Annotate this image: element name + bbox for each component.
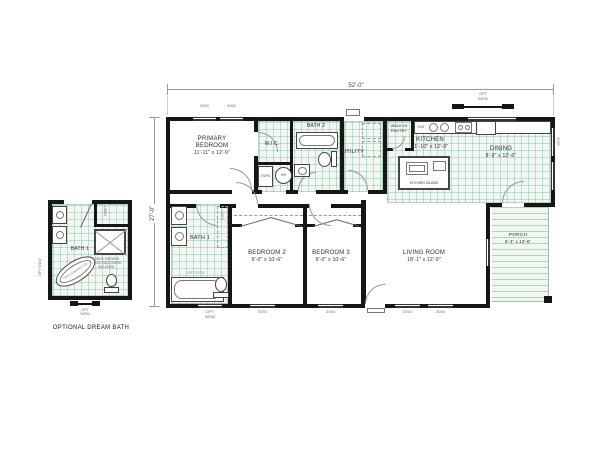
window-pane (250, 306, 275, 307)
toilet-bowl (215, 277, 227, 292)
pantry-label: WALK IN PANTRY (386, 124, 412, 133)
utility-label: UTILITY (333, 149, 373, 156)
inset-opt-window-cap (92, 301, 100, 306)
sink-basin (298, 167, 307, 175)
porch-post (544, 296, 552, 303)
room-size: 5'-4" x 13'-6" (495, 239, 541, 244)
room-size: 9'-0" x 10'-6" (237, 257, 297, 263)
inset-bath1-label: BATH 1 (60, 246, 100, 252)
window-pane (428, 306, 453, 307)
window (551, 162, 555, 190)
room-size: 11'-11" x 12'-9" (182, 150, 242, 156)
burner (465, 125, 470, 130)
window (395, 304, 420, 308)
inset-vanity (52, 206, 67, 224)
opt-window-tag: OPT WDW (470, 92, 496, 102)
toilet-bowl (318, 152, 331, 167)
window-tag: 3050 (395, 310, 420, 315)
furnace-label: FURN (258, 174, 273, 178)
room-size: 9'-0" x 10'-6" (301, 257, 361, 263)
room-name: LIVING ROOM (394, 250, 454, 257)
opt-tag-line: WDW (470, 97, 496, 102)
sink-basin (56, 231, 64, 239)
wall-furnace-closet-top (256, 162, 293, 165)
door-arc-front (365, 284, 385, 304)
water-heater-label: WH (275, 173, 292, 177)
island-cabinet (433, 161, 446, 171)
opt-storage-label: OPT STOR (176, 271, 216, 275)
wall-dining-porch (524, 203, 555, 207)
window-pane (318, 306, 343, 307)
room-name: UTILITY (333, 149, 373, 156)
bath1-vanity (171, 206, 187, 225)
bedroom2-label: BEDROOM 2 9'-0" x 10'-6" (237, 250, 297, 263)
window (193, 117, 216, 121)
inset-vanity (52, 226, 67, 244)
wic-label: W.I.C. (252, 141, 292, 147)
kitchen-label: KITCHEN 11'-10" x 12'-9" (400, 137, 460, 150)
window (486, 239, 490, 266)
window-pane (488, 239, 489, 266)
linen-label: LINEN (220, 210, 224, 220)
opt-tag-line: OPT (38, 269, 42, 276)
window-pane (198, 306, 222, 307)
opt-window-cap (502, 104, 514, 109)
living-room-label: LIVING ROOM 18'-1" x 12'-9" (394, 250, 454, 263)
room-name: PRIMARY BEDROOM (189, 136, 235, 150)
overall-width-dimension: 52'-0" (336, 83, 376, 89)
toilet-tank (213, 292, 229, 298)
dim-tick (167, 84, 168, 95)
dim-extension (167, 96, 168, 115)
wall-primary-wic (254, 117, 258, 132)
inset-wall-bottom (48, 296, 132, 300)
opt-window-tag: OPT WDW (198, 310, 222, 320)
wall-hall-south (258, 204, 309, 208)
inset-opt-window-cap (70, 301, 78, 306)
wall-hall-north (286, 190, 298, 194)
inset-linen-wall (94, 224, 128, 227)
dim-tick (149, 306, 160, 307)
washer-dryer (362, 123, 381, 139)
door-arc-bedroom3 (309, 204, 331, 226)
room-name: KITCHEN (400, 137, 460, 144)
room-name: W.I.C. (252, 141, 292, 147)
bifold-door (240, 217, 271, 227)
refrigerator (476, 121, 496, 135)
utility-back-door (344, 117, 364, 121)
floor-plan: 52'-0" 27'-0" (0, 0, 600, 463)
window-pane (553, 162, 554, 190)
opt-tag-line: WDW (38, 258, 42, 267)
dim-line-top (168, 89, 554, 90)
inset-linen-label: LINEN (103, 206, 107, 216)
bath1-label: BATH 1 (180, 235, 220, 242)
wall-hall-north (316, 190, 348, 194)
burner (458, 125, 463, 130)
sink-basin (175, 211, 184, 220)
window-tag: 3050 (428, 310, 453, 315)
window (250, 304, 275, 308)
room-size: 11'-10" x 12'-9" (400, 144, 460, 150)
overall-depth-dimension: 27'-0" (150, 204, 156, 223)
window (198, 304, 222, 308)
dim-tick (149, 117, 160, 118)
sink-basin (56, 211, 64, 219)
island-label: KITCHEN ISLAND (400, 181, 448, 185)
window (428, 304, 453, 308)
room-name: BEDROOM 3 (301, 250, 361, 257)
bifold-door (271, 217, 302, 227)
wall-dining-porch (490, 203, 502, 207)
room-name: BATH 1 (180, 235, 220, 242)
porch-deck (492, 207, 549, 302)
window-tag: 3050 (250, 310, 275, 315)
inset-opt-window-tag: OPT WDW (73, 308, 97, 317)
opt-window-cap (452, 104, 464, 109)
bath2-label: BATH 2 (296, 123, 336, 129)
dim-tick (553, 84, 554, 95)
inset-linen-wall (94, 204, 97, 226)
room-name: DINING (471, 146, 531, 153)
wall-living-right (486, 266, 490, 308)
kitchen-sink (429, 123, 438, 132)
kitchen-sink (440, 123, 449, 132)
island-sink-basin (409, 165, 425, 172)
inset-toilet-tank (104, 287, 119, 293)
door-stoop (346, 109, 360, 116)
bathtub (296, 132, 338, 149)
bath2-vanity (294, 164, 310, 177)
inset-side-tag: OPT WDW (38, 258, 42, 276)
wall-hall-south (331, 204, 365, 208)
closet-shelf (234, 215, 303, 216)
wall-bedroom3-living (361, 200, 366, 308)
bathtub-basin (299, 135, 335, 146)
door-stoop (367, 308, 385, 313)
window-pane (553, 128, 554, 156)
wall-exterior-left (166, 117, 170, 308)
window (318, 304, 343, 308)
window-pane (193, 119, 216, 120)
opt-tag-line: WDW (198, 315, 222, 320)
room-size: 8'-9" x 12'-6" (471, 153, 531, 159)
room-name: WALK IN PANTRY (388, 124, 410, 133)
inset-wall-right (128, 200, 132, 300)
inset-toilet-bowl (106, 274, 117, 287)
bifold-door (336, 219, 359, 227)
wall-living-right (486, 203, 490, 239)
inset-caption: OPTIONAL DREAM BATH (33, 325, 149, 332)
opt-tag-line: WDW (73, 312, 97, 316)
room-name: BATH 1 (60, 246, 100, 252)
window (220, 117, 243, 121)
window-pane (468, 119, 516, 120)
room-size: 18'-1" x 12'-9" (394, 257, 454, 263)
room-name: BATH 2 (296, 123, 336, 129)
wall-hall-north (166, 190, 232, 194)
window-tag: 3050 (193, 104, 216, 109)
bedroom3-label: BEDROOM 3 9'-0" x 10'-6" (301, 250, 361, 263)
room-name: BEDROOM 2 (237, 250, 297, 257)
dim-extension (553, 96, 554, 115)
window-tag: 3050 (220, 104, 243, 109)
window-tag: 3050 (318, 310, 343, 315)
window-pane (220, 119, 243, 120)
wall-hall-north (368, 190, 387, 194)
inset-wall-top (92, 200, 132, 204)
primary-bedroom-label: PRIMARY BEDROOM 11'-11" x 12'-9" (182, 136, 242, 156)
porch-label: PORCH 5'-4" x 13'-6" (495, 233, 541, 244)
window-pane (395, 306, 420, 307)
dishwasher-label: DW (415, 125, 427, 130)
dining-label: DINING 8'-9" x 12'-6" (471, 146, 531, 159)
window-tag: 3050 (555, 137, 560, 146)
